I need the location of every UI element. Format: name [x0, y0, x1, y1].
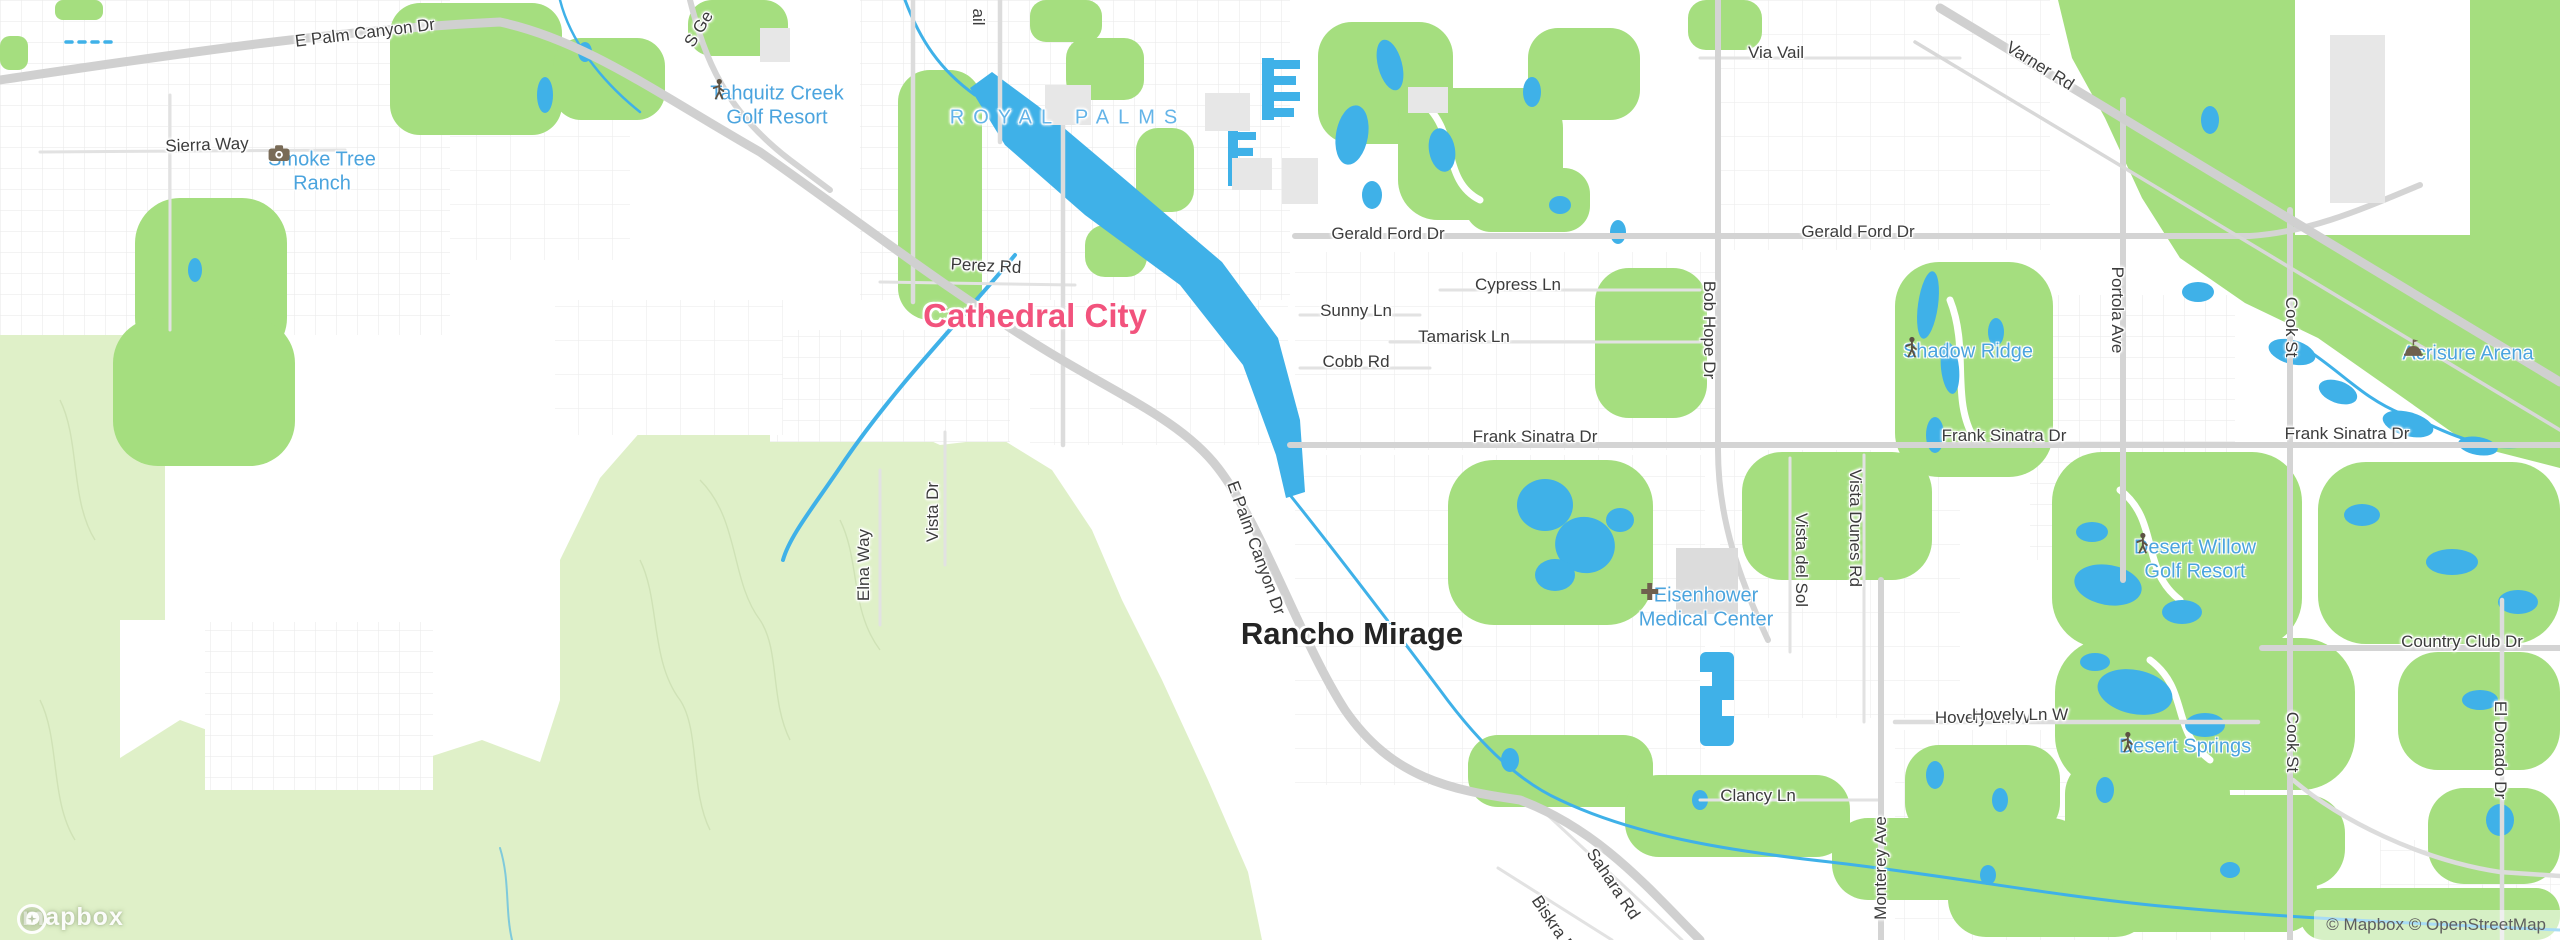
- eisenhower-building: [1676, 548, 1738, 614]
- map-canvas[interactable]: [0, 0, 2560, 940]
- attribution-text: © Mapbox © OpenStreetMap: [2326, 915, 2546, 935]
- attribution-bar[interactable]: © Mapbox © OpenStreetMap: [2314, 910, 2560, 940]
- mapbox-logo[interactable]: mapbox: [16, 903, 124, 932]
- map-viewport[interactable]: E Palm Canyon DrSierra WayS GeailPerez R…: [0, 0, 2560, 940]
